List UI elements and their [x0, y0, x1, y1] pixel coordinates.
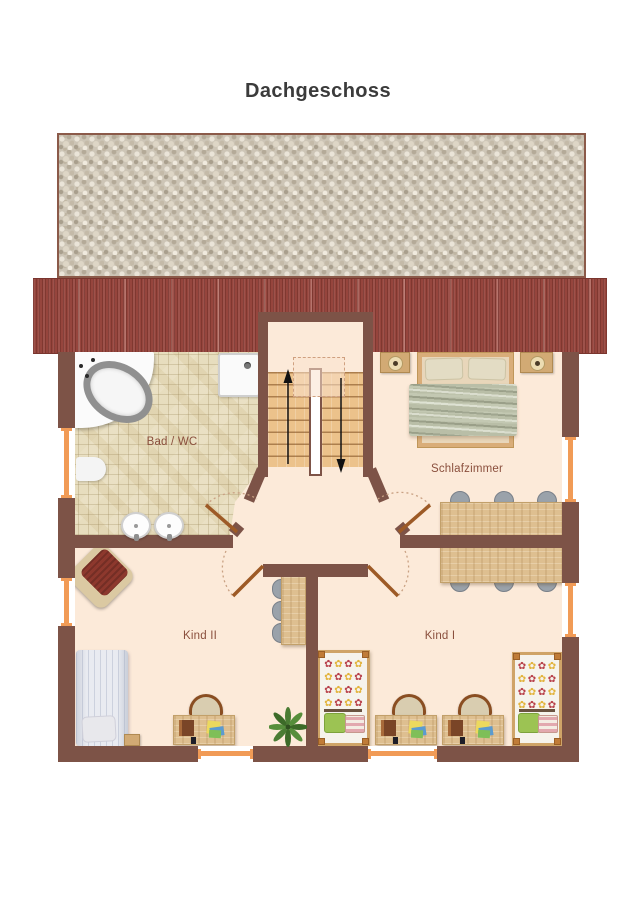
flower-icon: ✿ — [324, 686, 332, 696]
page-title: Dachgeschoss — [0, 80, 636, 103]
window-glass-icon — [64, 428, 69, 498]
nightstand — [380, 352, 410, 373]
flower-icon: ✿ — [528, 662, 536, 672]
desk — [442, 715, 504, 745]
gadget-icon — [393, 737, 398, 744]
pillow — [468, 357, 507, 380]
window-cap — [198, 749, 201, 759]
window-cap — [61, 428, 72, 431]
pillow — [81, 715, 116, 743]
bed-post — [513, 653, 520, 660]
paper-icon — [478, 730, 490, 739]
bed-post — [362, 738, 369, 745]
bed-post — [554, 653, 561, 660]
flower-icon: ✿ — [324, 699, 332, 709]
flower-icon: ✿ — [538, 662, 546, 672]
room-label-kind-2: Kind II — [165, 630, 235, 642]
wall-bathroom-south — [58, 535, 233, 548]
nightstand — [520, 352, 553, 373]
desk — [375, 715, 437, 745]
desk — [173, 715, 235, 745]
drain-icon — [134, 524, 138, 528]
stair-wall-right — [363, 312, 373, 477]
wall — [437, 746, 579, 762]
bathtub — [74, 352, 154, 428]
flower-icon: ✿ — [518, 675, 526, 685]
window-glass-icon — [64, 578, 69, 626]
flower-icon: ✿ — [334, 686, 342, 696]
window-cap — [565, 583, 576, 586]
flower-icon: ✿ — [538, 688, 546, 698]
bed-post — [513, 738, 520, 745]
shower-tray — [218, 353, 260, 397]
floor-plan-page: Dachgeschoss — [0, 0, 636, 900]
wall — [58, 352, 75, 428]
washbasin — [121, 512, 151, 539]
window — [562, 437, 579, 502]
book-icon — [381, 720, 396, 736]
nightstand — [124, 734, 140, 746]
single-bed: ✿✿✿✿✿✿✿✿✿✿✿✿✿✿✿✿ — [512, 652, 562, 746]
single-bed: ✿✿✿✿✿✿✿✿✿✿✿✿✿✿✿✿ — [317, 650, 370, 746]
stair-landing-outline — [293, 357, 345, 397]
gadget-icon — [191, 737, 196, 744]
window — [198, 746, 253, 762]
room-label-schlafzimmer: Schlafzimmer — [412, 463, 522, 475]
flower-icon: ✿ — [518, 662, 526, 672]
pillow — [518, 713, 540, 733]
toilet — [76, 457, 106, 481]
flower-icon: ✿ — [354, 660, 362, 670]
window-cap — [368, 749, 371, 759]
flower-icon: ✿ — [334, 699, 342, 709]
window-glass-icon — [568, 437, 573, 502]
window-cap — [565, 437, 576, 440]
flower-icon: ✿ — [538, 675, 546, 685]
flower-icon: ✿ — [354, 673, 362, 683]
paper-icon — [411, 730, 423, 739]
window-glass-icon — [368, 751, 437, 756]
flower-icon: ✿ — [548, 675, 556, 685]
flower-icon: ✿ — [528, 688, 536, 698]
flat-roof-gravel-area — [57, 133, 586, 278]
pillow — [324, 713, 346, 733]
flower-icon: ✿ — [518, 688, 526, 698]
window — [58, 428, 75, 498]
flower-icon: ✿ — [548, 688, 556, 698]
wall-bedroom-south — [400, 535, 579, 548]
flower-duvet: ✿✿✿✿✿✿✿✿✿✿✿✿✿✿✿✿ — [324, 660, 364, 709]
flower-icon: ✿ — [344, 660, 352, 670]
flower-icon: ✿ — [324, 673, 332, 683]
side-table — [281, 572, 306, 645]
bed-post — [554, 738, 561, 745]
book-icon — [179, 720, 194, 736]
drain-icon — [167, 524, 171, 528]
window-glass-icon — [568, 583, 573, 637]
window-cap — [61, 578, 72, 581]
wall — [562, 352, 579, 437]
wall-kids-divider — [306, 564, 318, 762]
tap-icon — [167, 534, 172, 541]
wall — [562, 637, 579, 762]
shower-drain-icon — [244, 362, 251, 369]
gadget-icon — [460, 737, 465, 744]
window-glass-icon — [198, 751, 253, 756]
flower-icon: ✿ — [324, 660, 332, 670]
bed-post — [362, 651, 369, 658]
room-label-kind-1: Kind I — [405, 630, 475, 642]
flower-icon: ✿ — [334, 673, 342, 683]
faucet-icon — [79, 364, 83, 368]
wall — [58, 626, 75, 762]
flower-icon: ✿ — [344, 699, 352, 709]
stair-wall-top — [258, 312, 373, 322]
flower-icon: ✿ — [528, 675, 536, 685]
faucet-icon — [91, 358, 95, 362]
pillow — [345, 715, 365, 733]
blanket — [409, 384, 517, 436]
bed-rail — [519, 709, 555, 712]
bedside-lamp-icon — [530, 356, 545, 371]
window — [562, 583, 579, 637]
book-icon — [448, 720, 463, 736]
flower-icon: ✿ — [344, 673, 352, 683]
window — [368, 746, 437, 762]
wall — [58, 746, 198, 762]
flower-icon: ✿ — [344, 686, 352, 696]
washbasin — [154, 512, 184, 539]
plant-icon — [269, 707, 307, 752]
flower-icon: ✿ — [548, 662, 556, 672]
pillow — [425, 357, 464, 380]
bed-post — [318, 738, 325, 745]
faucet-icon — [85, 374, 89, 378]
stair-wall-left — [258, 312, 268, 477]
pillow — [538, 715, 558, 733]
flower-icon: ✿ — [334, 660, 342, 670]
flower-icon: ✿ — [354, 686, 362, 696]
room-label-bad-wc: Bad / WC — [122, 436, 222, 448]
flower-duvet: ✿✿✿✿✿✿✿✿✿✿✿✿✿✿✿✿ — [517, 662, 557, 711]
bedside-lamp-icon — [388, 356, 403, 371]
paper-icon — [209, 730, 221, 739]
window — [58, 578, 75, 626]
bed-post — [318, 651, 325, 658]
tap-icon — [134, 534, 139, 541]
flower-icon: ✿ — [354, 699, 362, 709]
bed-rail — [324, 709, 362, 712]
